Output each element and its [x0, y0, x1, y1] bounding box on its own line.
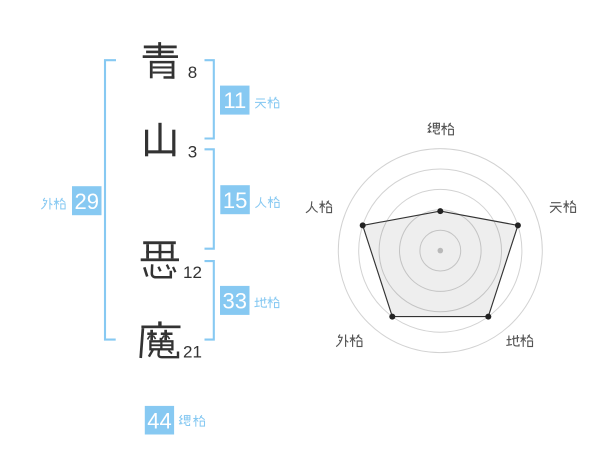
- svg-text:21: 21: [183, 343, 202, 362]
- svg-text:3: 3: [188, 142, 197, 161]
- svg-text:11: 11: [223, 88, 246, 113]
- svg-text:33: 33: [223, 289, 247, 314]
- svg-text:44: 44: [147, 408, 171, 433]
- svg-text:29: 29: [75, 189, 99, 214]
- svg-text:15: 15: [223, 188, 247, 213]
- svg-text:8: 8: [188, 63, 197, 82]
- svg-text:12: 12: [183, 263, 202, 282]
